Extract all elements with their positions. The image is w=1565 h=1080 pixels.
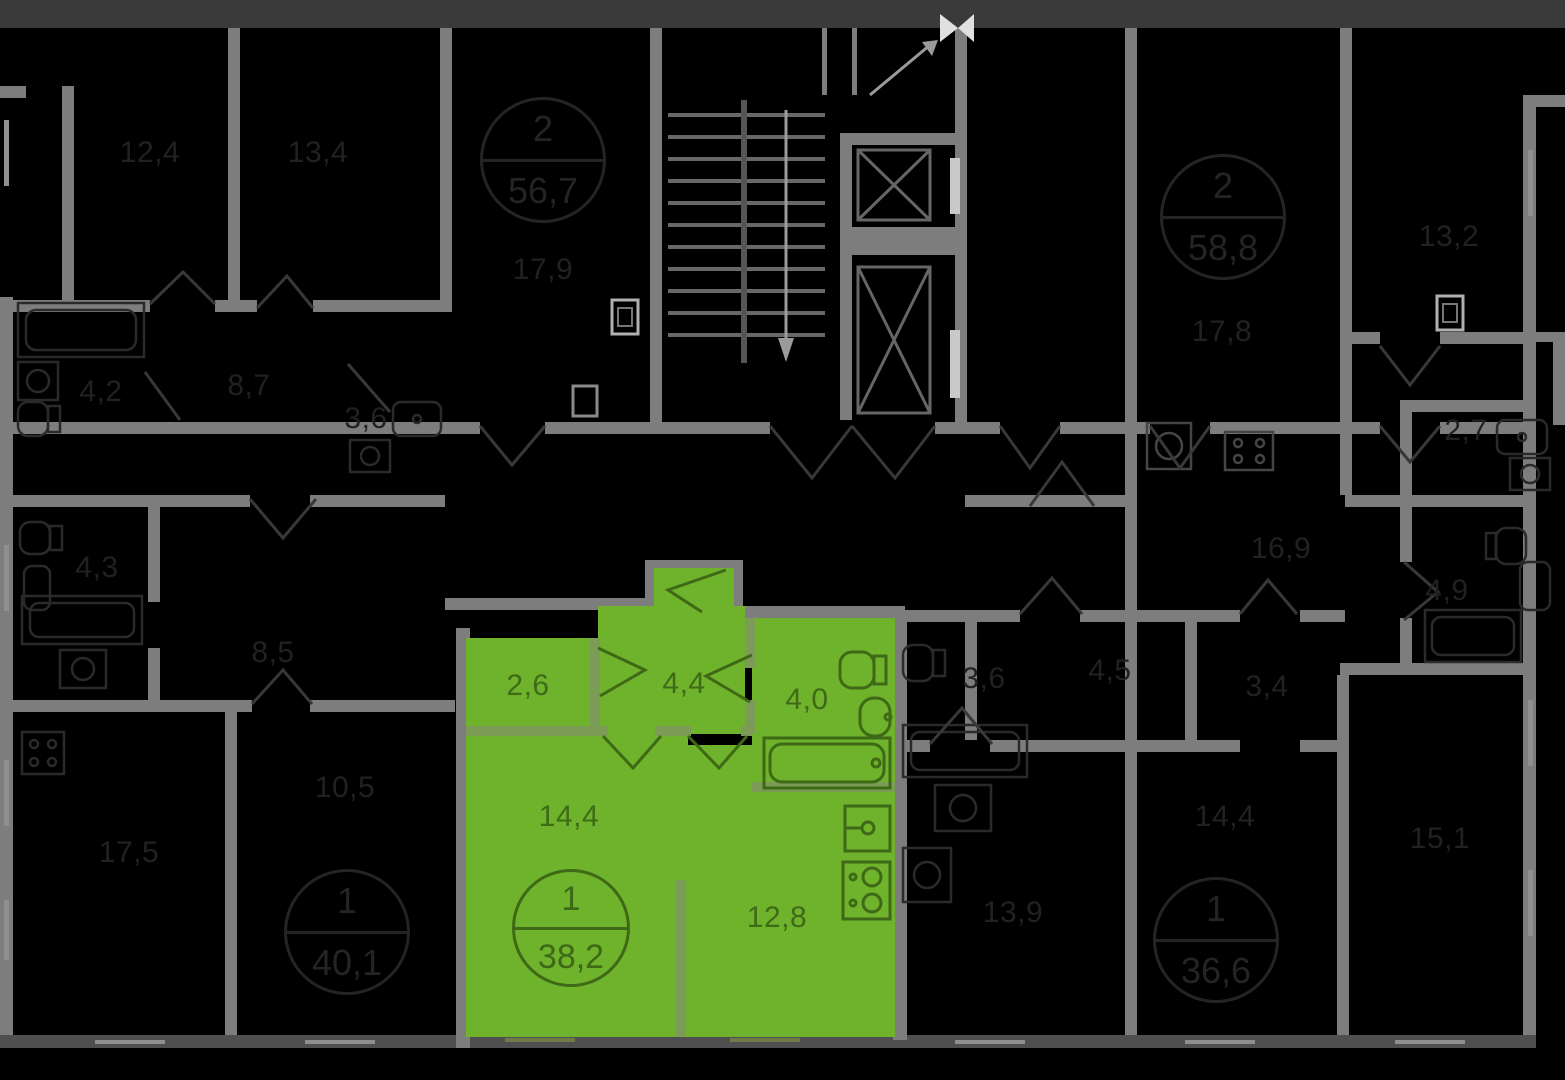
room-area-label-bathroom: 4,0 [785, 685, 828, 715]
facade-band [0, 0, 1565, 28]
bathtub-icon [18, 303, 144, 357]
room-area-label-living: 14,4 [539, 802, 599, 832]
stove-icon [1225, 432, 1273, 470]
bathtub-icon [1425, 610, 1521, 662]
washing-machine-icon [18, 362, 58, 400]
badge-area: 36,6 [1156, 939, 1276, 1001]
room-area-label: 4,5 [1088, 656, 1131, 686]
bathtub-icon [22, 596, 142, 644]
room-area-label-kitchen: 12,8 [747, 903, 807, 933]
badge-rooms: 2 [483, 100, 603, 159]
badge-area: 56,7 [483, 159, 603, 221]
room-area-label: 13,2 [1419, 222, 1479, 252]
stair-stringer [741, 100, 747, 363]
room-area-label: 13,9 [983, 898, 1043, 928]
badge-area: 58,8 [1163, 216, 1283, 278]
toilet-icon [1486, 528, 1526, 564]
room-area-label: 16,9 [1251, 534, 1311, 564]
toilet-icon [903, 645, 945, 681]
room-area-label: 8,5 [251, 638, 294, 668]
room-area-label: 4,2 [79, 377, 122, 407]
room-area-label: 8,7 [227, 371, 270, 401]
room-area-label-wardrobe: 2,6 [506, 671, 549, 701]
stair-arrow-head [778, 338, 794, 362]
elevator-2-door [950, 330, 960, 398]
room-area-label: 3,6 [962, 664, 1005, 694]
apartment-badge: 1 40,1 [284, 869, 410, 995]
room-area-label: 3,4 [1245, 672, 1288, 702]
room-area-label: 10,5 [315, 773, 375, 803]
badge-rooms: 1 [287, 872, 407, 931]
room-area-label: 2,7 [1444, 416, 1487, 446]
elevator-1-door [950, 158, 960, 214]
badge-rooms: 1 [515, 872, 627, 927]
room-area-label-hall: 4,4 [662, 669, 705, 699]
badge-area: 40,1 [287, 931, 407, 993]
entry-door-swing [870, 45, 930, 95]
room-area-label: 13,4 [288, 138, 348, 168]
washing-machine-icon [935, 785, 991, 831]
badge-rooms: 2 [1163, 157, 1283, 216]
apartment-badge: 1 36,6 [1153, 877, 1279, 1003]
room-area-label: 4,3 [75, 553, 118, 583]
badge-area: 38,2 [515, 927, 627, 985]
apartment-badge: 2 56,7 [480, 97, 606, 223]
apartment-badge: 2 58,8 [1160, 154, 1286, 280]
room-area-label: 17,8 [1192, 317, 1252, 347]
washing-machine-icon [350, 440, 390, 472]
stove-icon [22, 732, 64, 774]
badge-rooms: 1 [1156, 880, 1276, 939]
floor-plan: 12,4 13,4 17,9 17,8 13,2 4,2 8,7 3,6 4,3… [0, 0, 1565, 1080]
washing-machine-icon [903, 848, 951, 902]
room-area-label: 14,4 [1195, 802, 1255, 832]
apartment-badge-highlighted: 1 38,2 [512, 869, 630, 987]
elevator-shafts [858, 150, 930, 413]
room-area-label: 3,6 [344, 404, 387, 434]
room-area-label: 12,4 [120, 138, 180, 168]
room-area-label: 4,9 [1425, 576, 1468, 606]
toilet-icon [20, 522, 62, 554]
room-area-label: 17,9 [513, 255, 573, 285]
room-area-label: 15,1 [1410, 824, 1470, 854]
room-area-label: 17,5 [99, 838, 159, 868]
washing-machine-icon [60, 650, 106, 688]
stairwell [668, 14, 974, 363]
